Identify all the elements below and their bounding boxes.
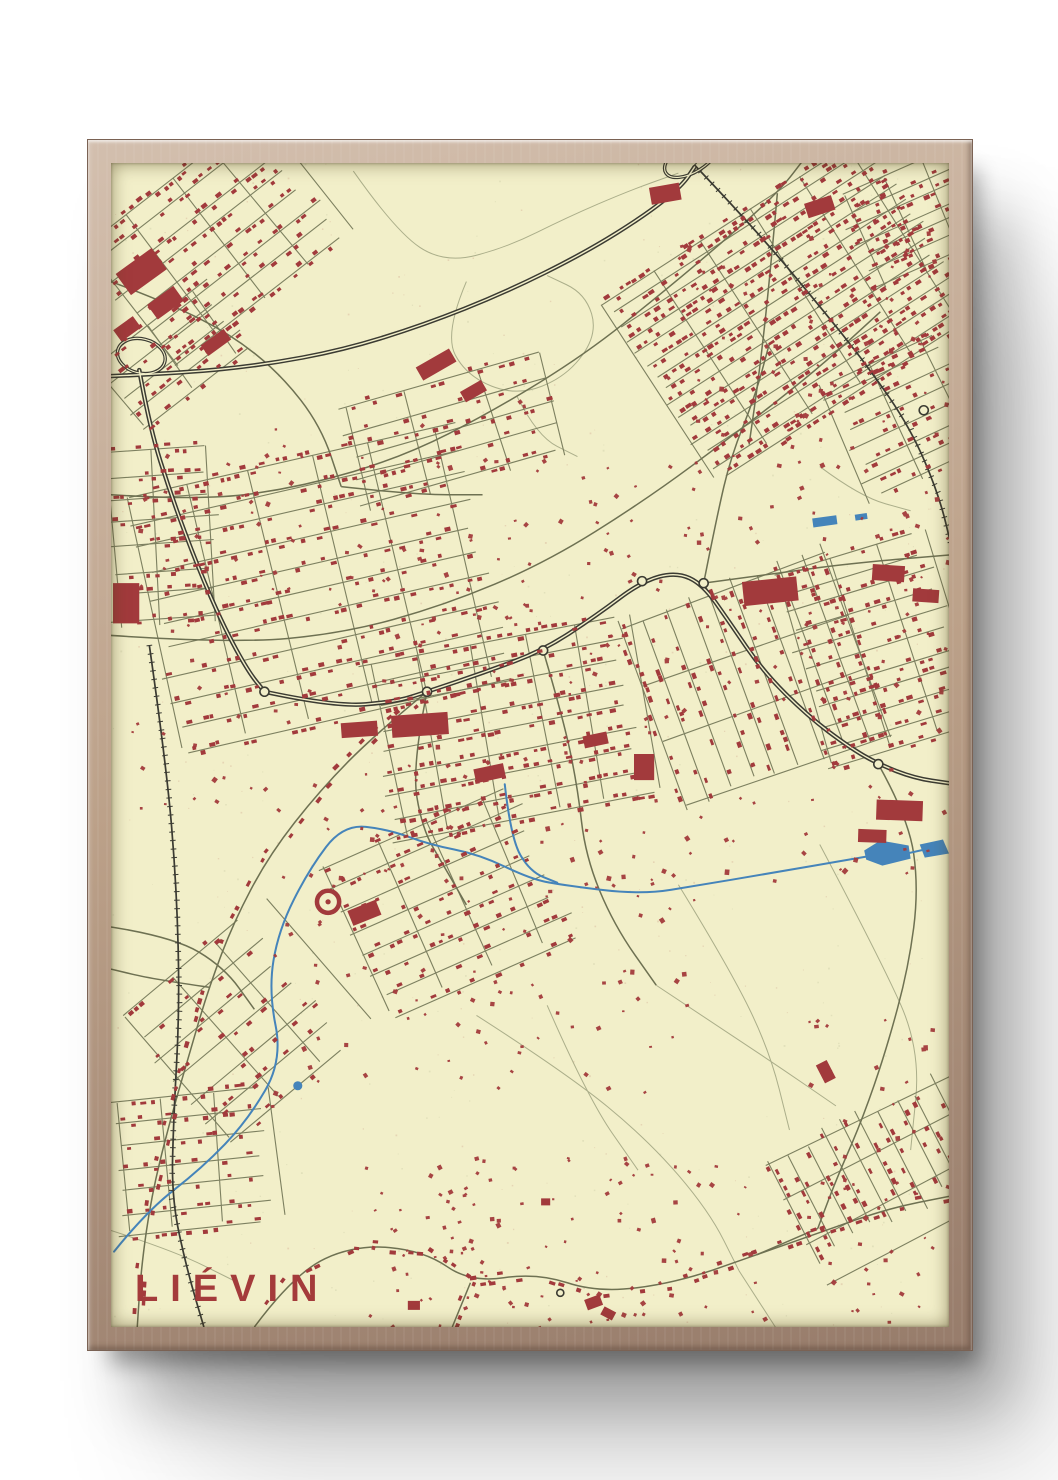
poster-title: LIÉVIN (135, 1268, 329, 1311)
map-paper: LIÉVIN (111, 163, 949, 1327)
studio-backdrop: { "poster": { "title": "LIÉVIN" }, "styl… (0, 0, 1058, 1480)
poster-frame: LIÉVIN (88, 140, 972, 1350)
city-map (111, 163, 949, 1327)
framed-map-poster: LIÉVIN (88, 140, 972, 1350)
